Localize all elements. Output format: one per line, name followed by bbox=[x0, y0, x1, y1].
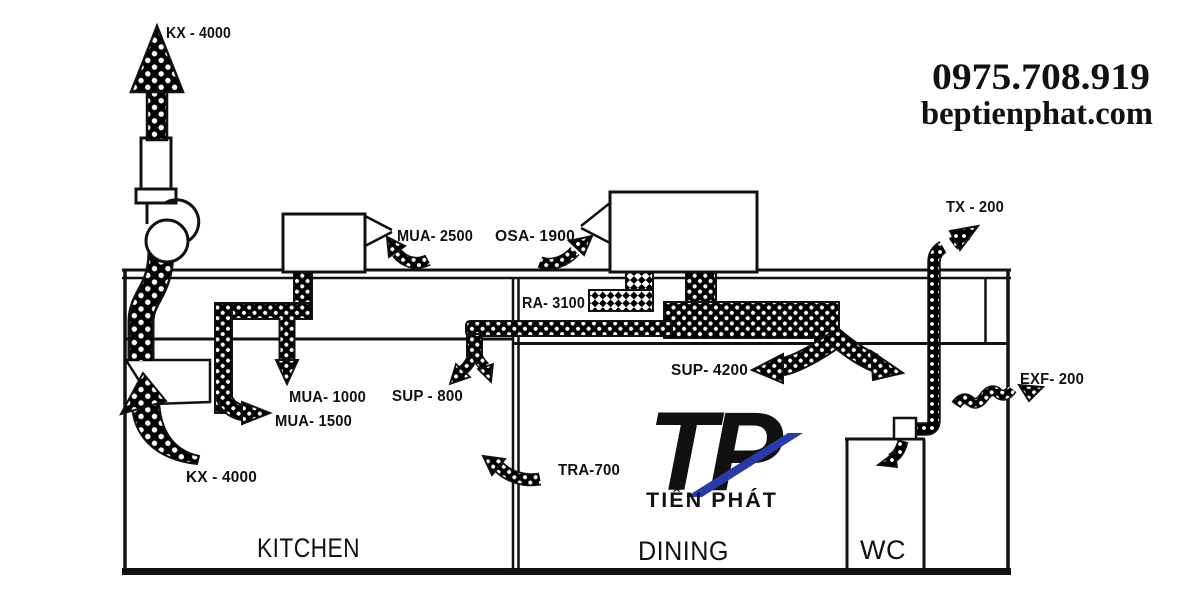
ra-duct-horizontal bbox=[589, 290, 653, 311]
ra-3100-label: RA- 3100 bbox=[522, 295, 585, 312]
supply-drop-duct bbox=[686, 268, 716, 306]
mua-1500-label: MUA- 1500 bbox=[275, 413, 352, 430]
mua-2500-label: MUA- 2500 bbox=[397, 228, 473, 245]
kitchen-label: KITCHEN bbox=[257, 533, 360, 563]
osa-1900-label: OSA- 1900 bbox=[495, 228, 575, 245]
tra-700-label: TRA-700 bbox=[558, 462, 620, 479]
diagram-canvas: KX - 4000 MUA- 2500 OSA- 1900 RA- 3100 T… bbox=[0, 0, 1200, 600]
kx-hood-label: KX - 4000 bbox=[186, 469, 257, 486]
exhaust-fan-scroll bbox=[146, 220, 188, 262]
hvac-airflow-diagram: KX - 4000 MUA- 2500 OSA- 1900 RA- 3100 T… bbox=[0, 0, 1200, 600]
sup-800-label: SUP - 800 bbox=[392, 388, 463, 405]
supply-main-duct bbox=[664, 302, 839, 338]
kx-stack-label: KX - 4000 bbox=[166, 25, 231, 42]
exhaust-stack bbox=[141, 138, 171, 190]
mua-1000-label: MUA- 1000 bbox=[289, 389, 366, 406]
mua-unit-box bbox=[283, 214, 365, 272]
dining-label: DINING bbox=[638, 536, 729, 566]
ahu-box bbox=[610, 192, 757, 272]
exf-200-label: EXF- 200 bbox=[1020, 371, 1084, 388]
floor-line bbox=[122, 568, 1011, 575]
logo-name: TIẾN PHÁT bbox=[646, 489, 778, 512]
supply-branch-duct bbox=[466, 321, 672, 336]
website: beptienphat.com bbox=[921, 96, 1153, 132]
phone-number: 0975.708.919 bbox=[932, 57, 1150, 98]
tx-fan-box bbox=[894, 418, 916, 439]
tx-200-label: TX - 200 bbox=[946, 199, 1004, 216]
sup-4200-label: SUP- 4200 bbox=[671, 362, 748, 379]
wc-label: WC bbox=[860, 535, 906, 565]
